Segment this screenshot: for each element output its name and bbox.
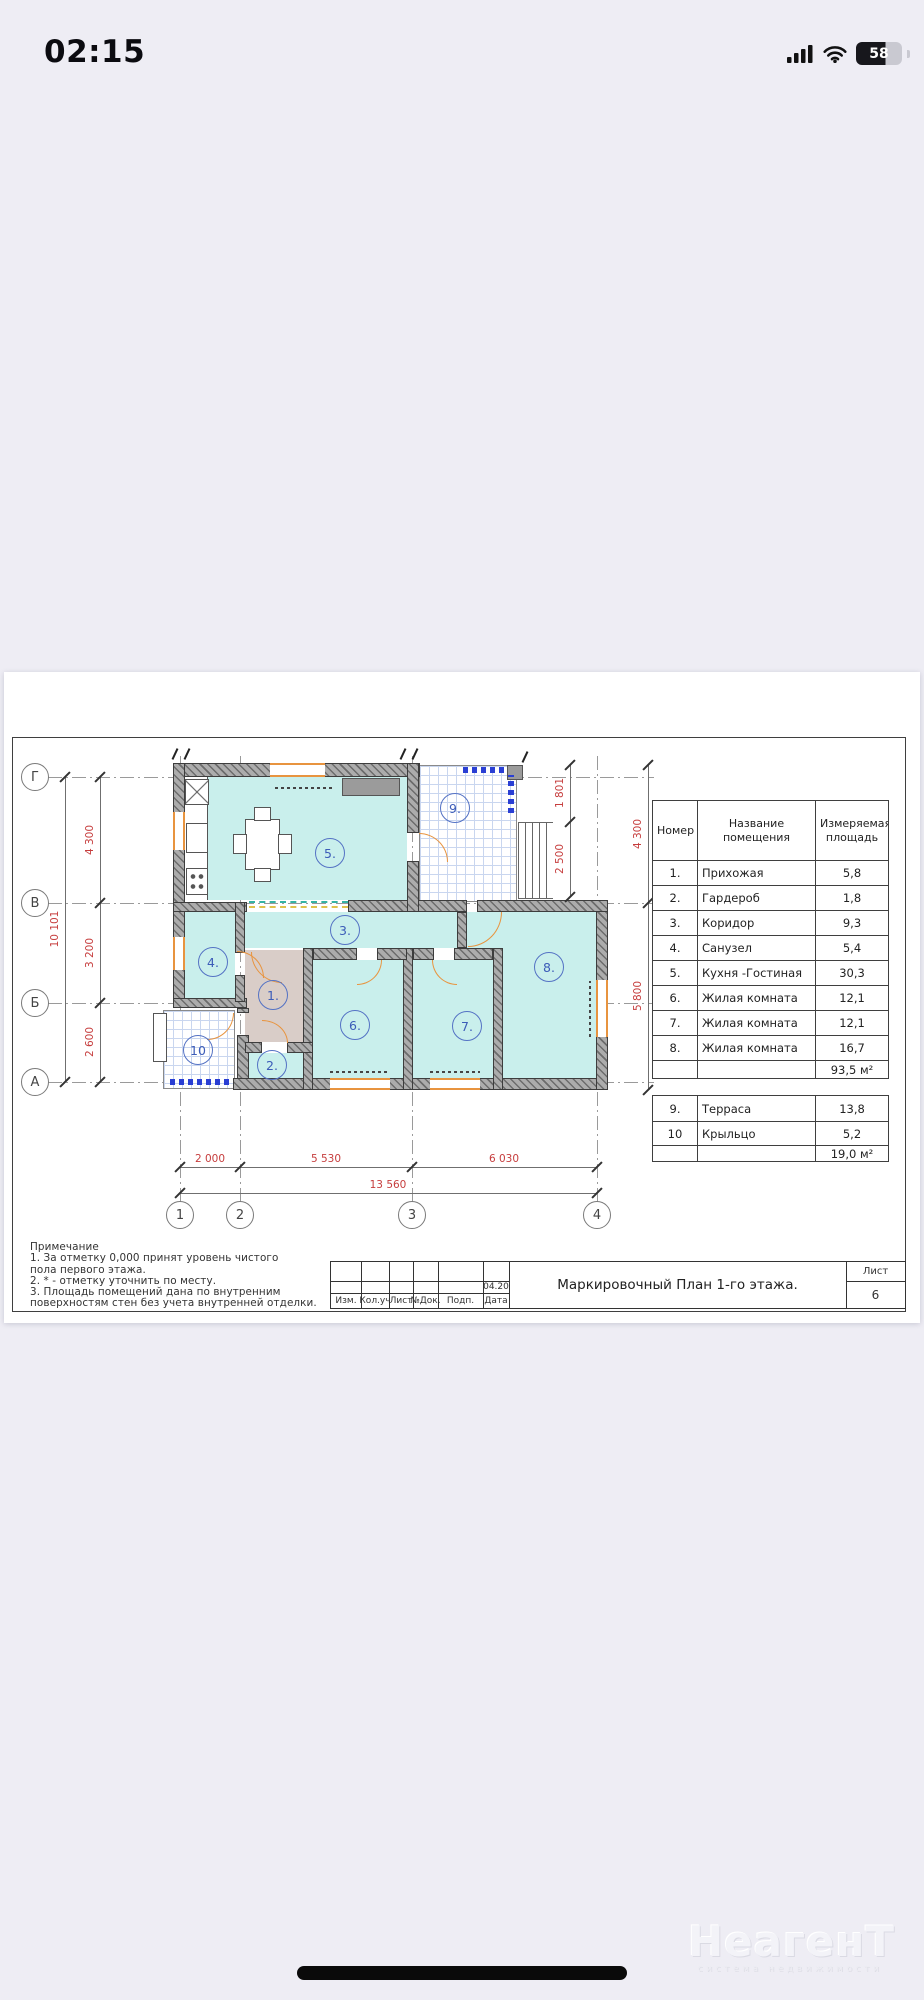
room-label-8: 8. bbox=[534, 952, 564, 982]
title-block: Изм. Кол.уч Лист №Док. Подп. Дата 04.20 … bbox=[330, 1261, 906, 1309]
fridge bbox=[186, 823, 208, 853]
window-hatch bbox=[589, 981, 591, 1037]
table-row: 4.Санузел5,4 bbox=[653, 936, 889, 961]
tb-col-podp: Подп. bbox=[438, 1294, 483, 1307]
wall bbox=[413, 948, 434, 960]
vent-shaft bbox=[185, 779, 209, 805]
wall bbox=[477, 900, 608, 912]
tb-col-data: Дата bbox=[483, 1294, 509, 1307]
axis-bubble-g: Г bbox=[21, 763, 49, 791]
room-area-table: Номер Название помещения Измеряемая площ… bbox=[652, 800, 889, 1079]
wall bbox=[454, 948, 493, 960]
wall bbox=[245, 1042, 262, 1053]
wall bbox=[235, 902, 245, 953]
wall bbox=[233, 1078, 608, 1090]
sheet-label: Лист bbox=[846, 1262, 905, 1281]
table-row: 6.Жилая комната12,1 bbox=[653, 986, 889, 1011]
sheet-number: 6 bbox=[846, 1281, 905, 1308]
tb-col-ndok: №Док. bbox=[413, 1294, 438, 1307]
watermark-tagline: система недвижимости bbox=[688, 1964, 892, 1974]
wifi-icon bbox=[822, 44, 848, 63]
wall bbox=[377, 948, 407, 960]
room-label-7: 7. bbox=[452, 1011, 482, 1041]
dim-line bbox=[100, 777, 101, 1082]
dim-text: 6 030 bbox=[489, 1153, 519, 1165]
window-hatch bbox=[330, 1071, 390, 1073]
dim-text: 5 530 bbox=[311, 1153, 341, 1165]
axis-bubble-b: Б bbox=[21, 989, 49, 1017]
table-row: 1.Прихожая5,8 bbox=[653, 861, 889, 886]
total-area: 93,5 м² bbox=[816, 1061, 889, 1079]
table-row: 7.Жилая комната12,1 bbox=[653, 1011, 889, 1036]
dim-line bbox=[648, 765, 649, 1090]
wall bbox=[457, 912, 467, 948]
axis-bubble-1: 1 bbox=[166, 1201, 194, 1229]
chair bbox=[233, 834, 247, 854]
room-label-5: 5. bbox=[315, 838, 345, 868]
dim-text: 4 300 bbox=[632, 819, 644, 849]
dim-text: 2 000 bbox=[195, 1153, 225, 1165]
outdoor-area-table: 9.Терраса13,8 10Крыльцо5,2 19,0 м² bbox=[652, 1095, 889, 1162]
wall bbox=[407, 861, 419, 912]
terrace-edge-dashes bbox=[463, 767, 507, 773]
room-label-1: 1. bbox=[258, 980, 288, 1010]
wall bbox=[237, 1008, 249, 1013]
notes-block: Примечание 1. За отметку 0,000 принят ур… bbox=[30, 1242, 317, 1310]
col-header-name: Название помещения bbox=[698, 801, 816, 861]
axis-bubble-2: 2 bbox=[226, 1201, 254, 1229]
col-header-area: Измеряемая площадь bbox=[816, 801, 889, 861]
wall bbox=[403, 948, 413, 1090]
window bbox=[330, 1078, 390, 1090]
tb-col-izm: Изм. bbox=[331, 1294, 361, 1307]
chair bbox=[254, 807, 271, 821]
table-row: 5.Кухня -Гостиная30,3 bbox=[653, 961, 889, 986]
room-label-2: 2. bbox=[257, 1050, 287, 1080]
total-area: 19,0 м² bbox=[816, 1146, 889, 1162]
wall bbox=[235, 975, 245, 1002]
porch-edge-dashes bbox=[170, 1079, 233, 1085]
window-hatch bbox=[275, 787, 333, 789]
wall bbox=[173, 763, 185, 1008]
window bbox=[173, 937, 185, 970]
room-9-terrace bbox=[419, 765, 517, 902]
stove bbox=[186, 868, 208, 895]
watermark: НеагенТ система недвижимости bbox=[688, 1920, 892, 1974]
dim-text-total: 10 101 bbox=[49, 911, 61, 948]
chair bbox=[278, 834, 292, 854]
dim-line bbox=[180, 1167, 597, 1168]
dining-table bbox=[245, 819, 280, 870]
dim-text: 2 600 bbox=[84, 1027, 96, 1057]
cellular-signal-icon bbox=[787, 44, 814, 63]
wall bbox=[313, 948, 357, 960]
room-label-6: 6. bbox=[340, 1010, 370, 1040]
dim-text: 1 801 bbox=[554, 778, 566, 808]
home-indicator[interactable] bbox=[297, 1966, 627, 1980]
table-row: 8.Жилая комната16,7 bbox=[653, 1036, 889, 1061]
dim-line bbox=[180, 1193, 597, 1194]
window bbox=[173, 812, 185, 850]
col-header-number: Номер bbox=[653, 801, 698, 861]
room-label-10: 10 bbox=[183, 1035, 213, 1065]
room-label-4: 4. bbox=[198, 947, 228, 977]
open-boundary bbox=[249, 906, 348, 908]
wall bbox=[407, 763, 419, 833]
tb-col-koluch: Кол.уч bbox=[361, 1294, 389, 1307]
table-total-row: 93,5 м² bbox=[653, 1061, 889, 1079]
tb-col-list: Лист bbox=[389, 1294, 413, 1307]
watermark-logo: НеагенТ bbox=[688, 1920, 892, 1964]
table-row: 9.Терраса13,8 bbox=[653, 1096, 889, 1122]
battery-icon: 58 bbox=[856, 42, 902, 65]
phone-screen: { "status_bar": { "time": "02:15", "batt… bbox=[0, 0, 924, 2000]
wall bbox=[287, 1042, 313, 1053]
table-row: 3.Коридор9,3 bbox=[653, 911, 889, 936]
battery-cap bbox=[907, 50, 910, 58]
tb-date: 04.20 bbox=[483, 1281, 509, 1293]
table-total-row: 19,0 м² bbox=[653, 1146, 889, 1162]
room-label-3: 3. bbox=[330, 915, 360, 945]
terrace-edge-dashes bbox=[508, 775, 514, 813]
dim-line bbox=[570, 765, 571, 897]
room-label-9: 9. bbox=[440, 793, 470, 823]
axis-bubble-a: А bbox=[21, 1068, 49, 1096]
axis-bubble-v: В bbox=[21, 889, 49, 917]
dim-text: 4 300 bbox=[84, 825, 96, 855]
window bbox=[270, 763, 325, 777]
window bbox=[430, 1078, 480, 1090]
chair bbox=[254, 868, 271, 882]
dim-line bbox=[65, 777, 66, 1082]
terrace-stairs bbox=[518, 822, 553, 899]
table-row: 2.Гардероб1,8 bbox=[653, 886, 889, 911]
porch-step bbox=[153, 1013, 167, 1062]
built-in-unit bbox=[342, 778, 400, 796]
wall bbox=[493, 948, 503, 1090]
dim-text: 5 800 bbox=[632, 981, 644, 1011]
dim-text-total: 13 560 bbox=[370, 1179, 407, 1191]
battery-percent: 58 bbox=[869, 46, 888, 62]
table-row: 10Крыльцо5,2 bbox=[653, 1122, 889, 1146]
open-boundary bbox=[249, 901, 348, 903]
room-8-living bbox=[503, 912, 596, 1078]
window-hatch bbox=[430, 1071, 480, 1073]
window bbox=[596, 980, 608, 1037]
wall bbox=[303, 948, 313, 1090]
floorplan-document-image[interactable]: Г В Б А 1 2 3 4 1. 2. 3. 4. 5. 6. 7. 8. … bbox=[4, 672, 920, 1323]
clock: 02:15 bbox=[44, 34, 145, 70]
drawing-title: Маркировочный План 1-го этажа. bbox=[509, 1262, 846, 1308]
axis-bubble-4: 4 bbox=[583, 1201, 611, 1229]
axis-bubble-3: 3 bbox=[398, 1201, 426, 1229]
dim-text: 2 500 bbox=[554, 844, 566, 874]
dim-text: 3 200 bbox=[84, 938, 96, 968]
